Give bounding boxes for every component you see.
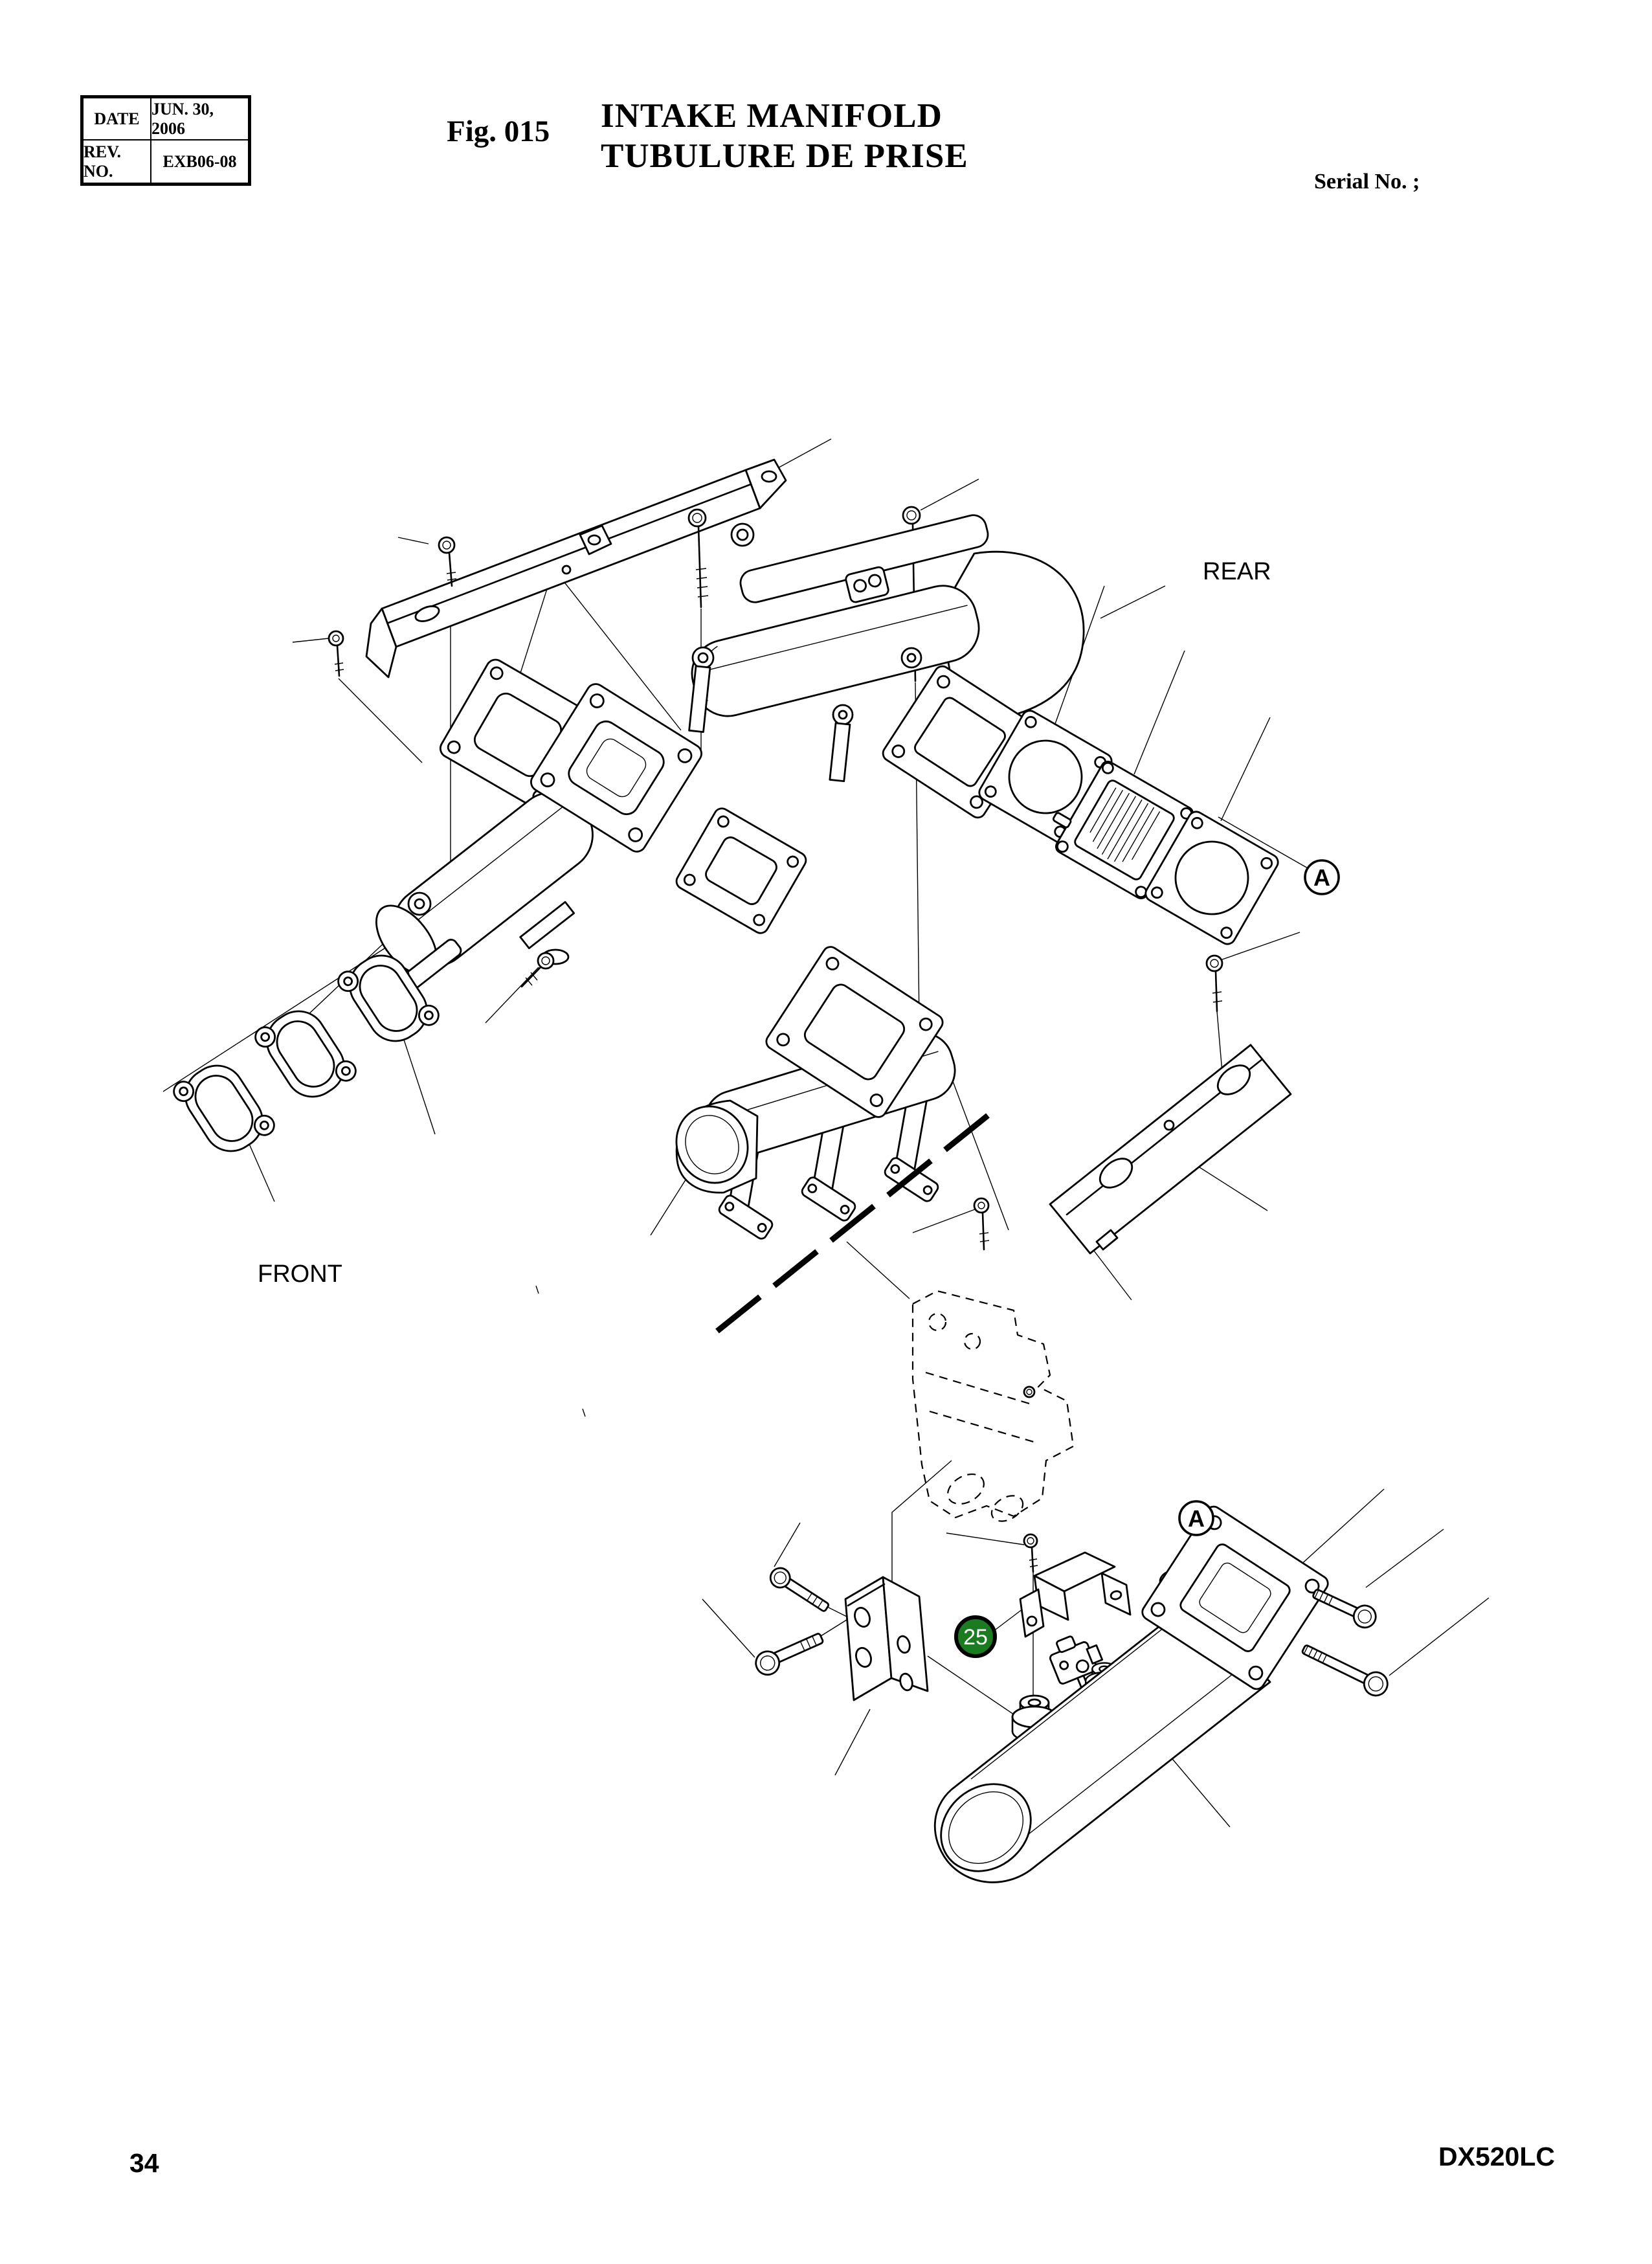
hex-bolt-2 [752, 1628, 827, 1679]
bolt-small-4 [974, 1198, 989, 1250]
detail-marker-a-2: A [1179, 1501, 1213, 1535]
hex-bolt-4 [1299, 1638, 1391, 1699]
bolt-small-6 [1024, 1534, 1038, 1572]
ghost-engine-bracket [913, 1291, 1073, 1527]
svg-text:A: A [1188, 1505, 1205, 1532]
air-intake-tube [923, 1504, 1330, 1890]
hex-bolt-1 [766, 1564, 832, 1616]
model-name: DX520LC [1438, 2142, 1555, 2172]
intake-manifold-lower [664, 944, 962, 1240]
page-number: 34 [129, 2148, 159, 2179]
bolt-small-3 [522, 953, 553, 987]
front-label: FRONT [258, 1261, 342, 1288]
svg-text:25: 25 [963, 1625, 988, 1650]
port-gasket-2 [252, 997, 359, 1112]
cover-plate [1050, 1045, 1291, 1253]
parts-catalog-page: DATE JUN. 30, 2006 REV. NO. EXB06-08 Fig… [0, 0, 1652, 2264]
rear-label: REAR [1203, 558, 1271, 585]
exploded-parts-diagram: REAR FRONT A A 25 [0, 0, 1652, 2264]
port-gasket-1 [170, 1051, 278, 1166]
hex-bolt-3 [1310, 1583, 1379, 1631]
clamp-bracket [1020, 1552, 1130, 1637]
support-bracket [845, 1577, 928, 1700]
part-callout-25[interactable]: 25 [956, 1617, 995, 1656]
bolt-small-5 [1207, 956, 1222, 1011]
svg-text:A: A [1313, 864, 1330, 891]
detail-marker-a-1: A [1305, 860, 1339, 894]
bolt-small-1 [439, 537, 456, 586]
bolt-small-2 [329, 631, 344, 676]
square-gasket-2 [674, 805, 809, 936]
